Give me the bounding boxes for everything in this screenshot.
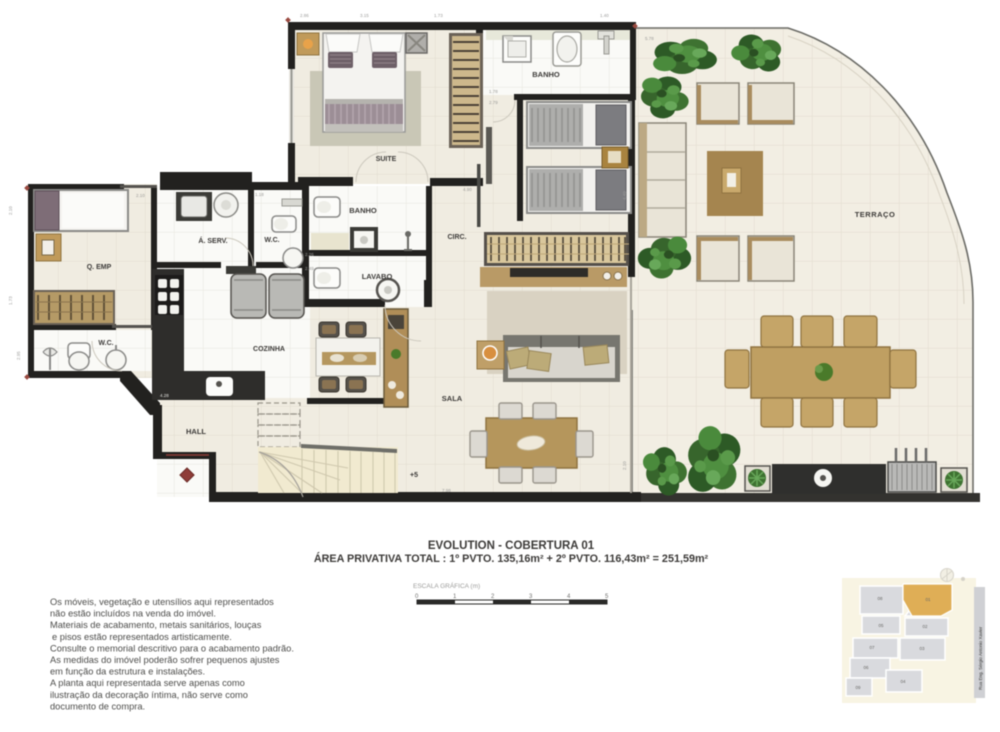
svg-text:2.26: 2.26 <box>305 252 314 257</box>
svg-text:2.86: 2.86 <box>300 13 309 18</box>
svg-text:02: 02 <box>922 624 928 629</box>
svg-text:04: 04 <box>900 679 906 684</box>
svg-text:03: 03 <box>919 646 925 651</box>
svg-text:4.90: 4.90 <box>463 187 472 192</box>
svg-text:08: 08 <box>877 596 883 601</box>
svg-text:W.C.: W.C. <box>98 340 113 347</box>
svg-text:2.79: 2.79 <box>489 100 498 105</box>
svg-text:ÁREA PRIVATIVA TOTAL : 1º PVTO: ÁREA PRIVATIVA TOTAL : 1º PVTO. 135,16m²… <box>314 552 709 565</box>
svg-text:Materiais de acabamento, metai: Materiais de acabamento, metais sanitári… <box>50 620 262 630</box>
svg-text:4: 4 <box>567 594 571 600</box>
svg-text:2.10: 2.10 <box>622 461 627 470</box>
svg-text:05: 05 <box>878 623 884 628</box>
svg-text:COZINHA: COZINHA <box>253 346 285 353</box>
svg-text:LAVABO: LAVABO <box>362 272 393 281</box>
svg-text:documento de compra.: documento de compra. <box>50 701 145 711</box>
svg-text:0: 0 <box>415 594 419 600</box>
svg-text:3.15: 3.15 <box>360 13 369 18</box>
svg-text:SALA: SALA <box>442 394 463 403</box>
svg-text:09: 09 <box>855 685 861 690</box>
svg-text:1: 1 <box>453 594 457 600</box>
svg-text:W.C.: W.C. <box>264 237 279 244</box>
svg-text:TERRAÇO: TERRAÇO <box>855 210 896 219</box>
svg-text:1.78: 1.78 <box>489 89 498 94</box>
svg-text:1.40: 1.40 <box>600 13 609 18</box>
svg-text:2.49: 2.49 <box>305 266 314 271</box>
svg-text:ESCALA GRÁFICA (m): ESCALA GRÁFICA (m) <box>413 581 480 590</box>
svg-text:Rua Eng. Sérgio Antonio Xavier: Rua Eng. Sérgio Antonio Xavier <box>978 626 983 690</box>
svg-text:Os móveis, vegetação e utensíl: Os móveis, vegetação e utensílios aqui r… <box>50 597 274 607</box>
svg-text:As medidas do imóvel poderão s: As medidas do imóvel poderão sofrer pequ… <box>50 655 280 665</box>
svg-text:2.10: 2.10 <box>136 193 145 198</box>
svg-text:3: 3 <box>529 594 533 600</box>
svg-text:1.73: 1.73 <box>8 296 13 305</box>
svg-text:não estão incluídos na venda d: não estão incluídos na venda do imóvel. <box>50 609 216 619</box>
svg-text:1.18: 1.18 <box>255 192 264 197</box>
svg-text:CIRC.: CIRC. <box>447 234 466 241</box>
svg-text:4.40: 4.40 <box>622 191 627 200</box>
svg-text:BANHO: BANHO <box>349 206 377 215</box>
svg-text:+5: +5 <box>410 472 418 479</box>
svg-text:4.28: 4.28 <box>160 393 169 398</box>
svg-text:1.73: 1.73 <box>434 13 443 18</box>
svg-text:SUITE: SUITE <box>376 156 397 163</box>
svg-text:Consulte o memorial descritivo: Consulte o memorial descritivo para o ac… <box>50 643 294 653</box>
svg-text:01: 01 <box>925 597 931 602</box>
svg-text:e pisos estão representados ar: e pisos estão representados artisticamen… <box>52 632 232 642</box>
svg-text:2.10: 2.10 <box>8 206 13 215</box>
svg-text:7.98: 7.98 <box>442 488 451 493</box>
svg-text:06: 06 <box>863 665 869 670</box>
svg-text:HALL: HALL <box>186 427 206 436</box>
svg-text:BANHO: BANHO <box>532 70 560 79</box>
svg-text:EVOLUTION - COBERTURA 01: EVOLUTION - COBERTURA 01 <box>428 540 595 552</box>
svg-text:Q. EMP: Q. EMP <box>87 264 112 271</box>
svg-text:07: 07 <box>869 645 875 650</box>
svg-text:2.95: 2.95 <box>16 351 21 360</box>
svg-text:ilustração da decoração íntima: ilustração da decoração íntima, não serv… <box>50 690 248 700</box>
svg-text:5: 5 <box>605 594 609 600</box>
svg-text:Á. SERV.: Á. SERV. <box>198 236 227 245</box>
svg-text:A planta aqui representada ser: A planta aqui representada serve apenas … <box>50 678 245 688</box>
svg-text:em função da estrutura e insta: em função da estrutura e instalações. <box>50 667 205 677</box>
svg-text:2: 2 <box>491 594 495 600</box>
svg-text:5.78: 5.78 <box>645 36 654 41</box>
